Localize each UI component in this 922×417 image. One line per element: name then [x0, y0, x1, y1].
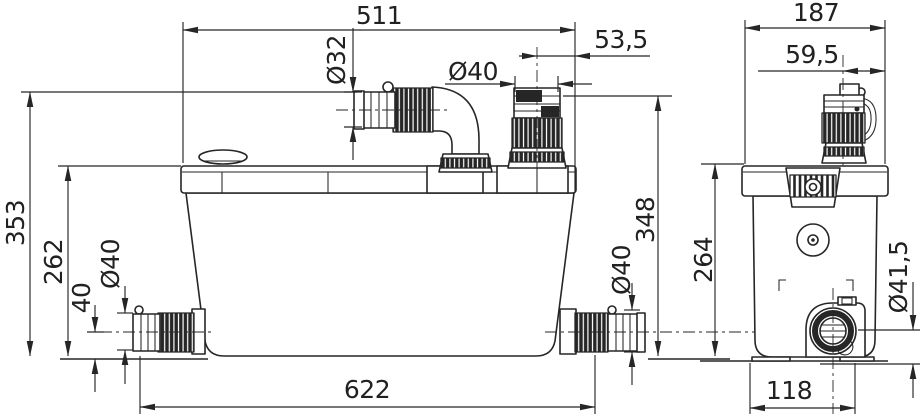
dim-label-o41-5: Ø41,5: [884, 241, 913, 314]
dim-label-40: 40: [67, 283, 96, 314]
dim-label-262: 262: [39, 239, 68, 285]
dim-label-o40-right: Ø40: [607, 245, 636, 295]
dim-label-o40-top: Ø40: [448, 57, 498, 86]
dim-label-118: 118: [766, 376, 812, 405]
dim-label-511: 511: [356, 1, 402, 30]
dim-label-622: 622: [344, 375, 390, 404]
dim-label-o40-left: Ø40: [96, 239, 125, 289]
dim-label-348: 348: [631, 197, 660, 243]
dimensional-drawing-page: 511 53,5 Ø40 Ø32: [0, 0, 922, 417]
pump-dimensional-drawing: 511 53,5 Ø40 Ø32: [0, 0, 922, 417]
dim-label-187: 187: [793, 0, 839, 27]
dim-label-53-5: 53,5: [594, 25, 648, 54]
right-inlet-connector: [560, 306, 645, 354]
dim-label-353: 353: [1, 200, 30, 246]
dim-label-59-5: 59,5: [785, 40, 839, 69]
dim-label-o32: Ø32: [322, 35, 351, 85]
dim-label-264: 264: [689, 237, 718, 283]
inspection-cap: [199, 150, 247, 164]
front-tank: [181, 150, 576, 356]
